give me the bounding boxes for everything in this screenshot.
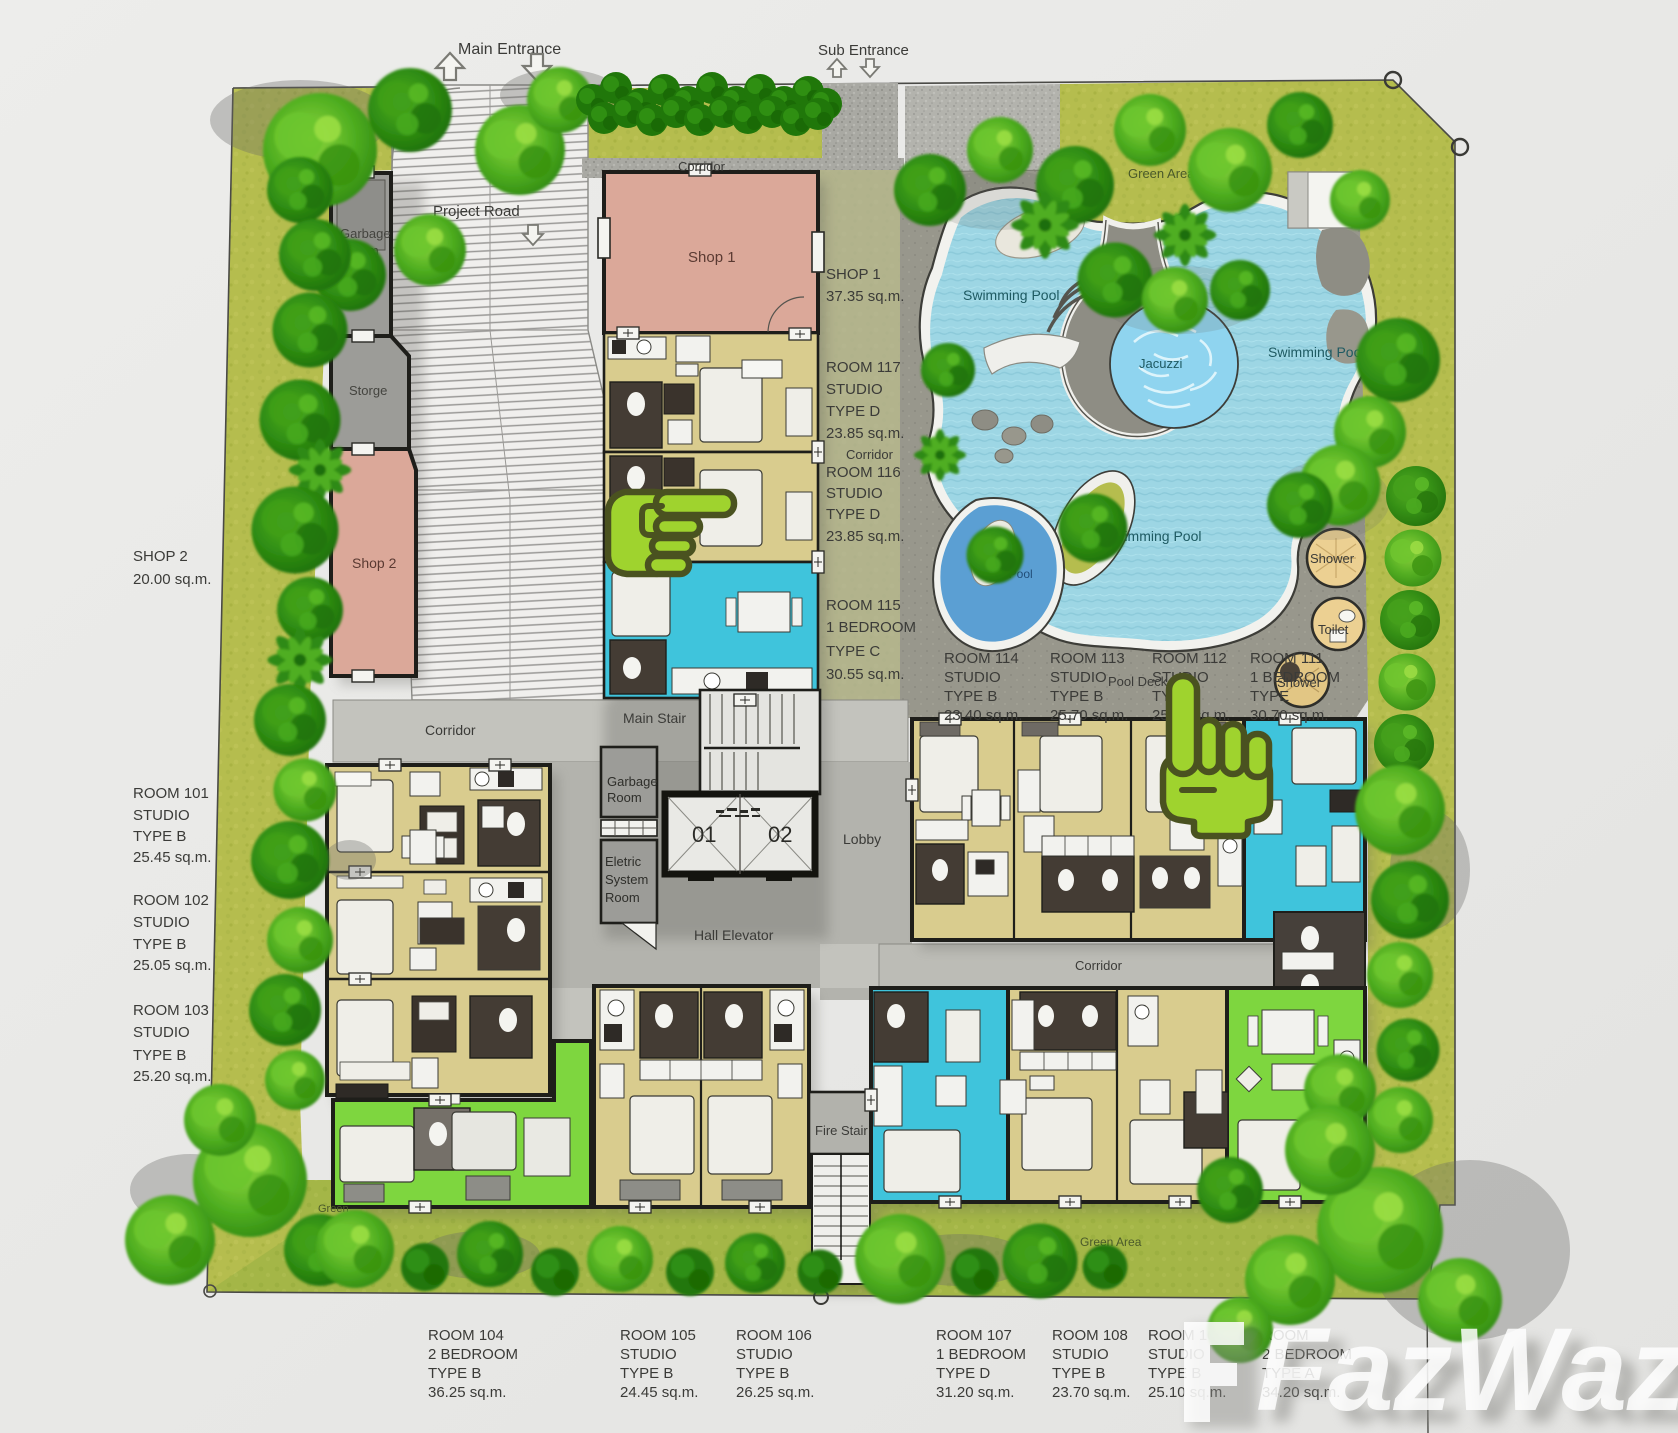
svg-text:Main Entrance: Main Entrance bbox=[458, 41, 561, 58]
svg-text:24.45 sq.m.: 24.45 sq.m. bbox=[620, 1384, 698, 1401]
svg-text:STUDIO: STUDIO bbox=[736, 1346, 793, 1363]
svg-text:Swimming Pool: Swimming Pool bbox=[1268, 344, 1364, 360]
svg-text:Eletric: Eletric bbox=[605, 854, 642, 869]
svg-text:TYPE B: TYPE B bbox=[428, 1365, 481, 1382]
svg-text:ROOM 102: ROOM 102 bbox=[133, 892, 209, 909]
svg-text:ROOM 107: ROOM 107 bbox=[936, 1327, 1012, 1344]
svg-text:ROOM 108: ROOM 108 bbox=[1052, 1327, 1128, 1344]
svg-text:23.40 sq.m.: 23.40 sq.m. bbox=[944, 707, 1022, 724]
svg-text:Sub Entrance: Sub Entrance bbox=[818, 42, 909, 59]
svg-text:25.70 sq.m.: 25.70 sq.m. bbox=[1050, 707, 1128, 724]
svg-text:Garbage: Garbage bbox=[340, 226, 391, 241]
svg-text:ROOM 113: ROOM 113 bbox=[1050, 650, 1125, 667]
svg-text:Corridor: Corridor bbox=[678, 159, 726, 174]
svg-text:Project Road: Project Road bbox=[433, 203, 520, 220]
svg-text:STUDIO: STUDIO bbox=[826, 485, 883, 502]
svg-text:Green Area: Green Area bbox=[1128, 166, 1195, 181]
svg-text:02: 02 bbox=[768, 822, 792, 847]
svg-text:TYPE B: TYPE B bbox=[1050, 688, 1103, 705]
svg-text:TYPE D: TYPE D bbox=[936, 1365, 990, 1382]
svg-text:ROOM 115: ROOM 115 bbox=[826, 597, 901, 614]
svg-text:2 BEDROOM: 2 BEDROOM bbox=[428, 1346, 518, 1363]
svg-text:25.20 sq.m.: 25.20 sq.m. bbox=[133, 1068, 211, 1085]
svg-text:TYPE B: TYPE B bbox=[133, 1047, 186, 1064]
svg-text:ROOM 117: ROOM 117 bbox=[826, 359, 901, 376]
svg-text:25.45 sq.m.: 25.45 sq.m. bbox=[133, 849, 211, 866]
svg-text:Shop 1: Shop 1 bbox=[688, 249, 736, 266]
svg-text:TYPE B: TYPE B bbox=[620, 1365, 673, 1382]
svg-text:37.35 sq.m.: 37.35 sq.m. bbox=[826, 288, 904, 305]
svg-text:FazWaz: FazWaz bbox=[1256, 1304, 1678, 1433]
svg-text:ROOM 104: ROOM 104 bbox=[428, 1327, 504, 1344]
svg-text:TYPE B: TYPE B bbox=[133, 828, 186, 845]
svg-text:01: 01 bbox=[692, 822, 716, 847]
svg-text:Garbage: Garbage bbox=[607, 774, 658, 789]
svg-text:TYPE: TYPE bbox=[1250, 688, 1289, 705]
svg-text:Storge: Storge bbox=[349, 383, 387, 398]
svg-text:TYPE D: TYPE D bbox=[826, 506, 880, 523]
svg-text:1 BEDROOM: 1 BEDROOM bbox=[936, 1346, 1026, 1363]
svg-text:TYPE B: TYPE B bbox=[736, 1365, 789, 1382]
svg-text:Lobby: Lobby bbox=[843, 831, 881, 847]
svg-text:STUDIO: STUDIO bbox=[944, 669, 1001, 686]
svg-text:TYPE D: TYPE D bbox=[826, 403, 880, 420]
svg-text:ROOM 103: ROOM 103 bbox=[133, 1002, 209, 1019]
svg-text:30.70 sq.m.: 30.70 sq.m. bbox=[1250, 707, 1328, 724]
svg-text:23.85 sq.m.: 23.85 sq.m. bbox=[826, 528, 904, 545]
svg-text:STUDIO: STUDIO bbox=[620, 1346, 677, 1363]
svg-text:Hall Elevator: Hall Elevator bbox=[694, 927, 774, 943]
svg-text:Corridor: Corridor bbox=[425, 722, 476, 738]
svg-text:30.55 sq.m.: 30.55 sq.m. bbox=[826, 666, 904, 683]
svg-text:Fire Stair: Fire Stair bbox=[815, 1123, 868, 1138]
svg-text:ROOM 111: ROOM 111 bbox=[1250, 650, 1324, 667]
svg-text:1 BEDROOM: 1 BEDROOM bbox=[1250, 669, 1340, 686]
svg-text:Room: Room bbox=[607, 790, 642, 805]
svg-text:Shower: Shower bbox=[1310, 551, 1355, 566]
svg-text:TYPE B: TYPE B bbox=[944, 688, 997, 705]
svg-text:TYPE B: TYPE B bbox=[1052, 1365, 1105, 1382]
svg-text:1 BEDROOM: 1 BEDROOM bbox=[826, 619, 916, 636]
svg-text:ROOM 105: ROOM 105 bbox=[620, 1327, 696, 1344]
svg-text:STUDIO: STUDIO bbox=[133, 807, 190, 824]
svg-text:Main Stair: Main Stair bbox=[623, 710, 686, 726]
svg-text:Corridor: Corridor bbox=[846, 447, 894, 462]
svg-text:STUDIO: STUDIO bbox=[1052, 1346, 1109, 1363]
svg-text:TYPE C: TYPE C bbox=[826, 643, 880, 660]
svg-text:25.05 sq.m.: 25.05 sq.m. bbox=[133, 957, 211, 974]
svg-text:Shop 2: Shop 2 bbox=[352, 555, 397, 571]
svg-text:STUDIO: STUDIO bbox=[133, 914, 190, 931]
svg-text:Corridor: Corridor bbox=[1075, 958, 1123, 973]
svg-text:ROOM 101: ROOM 101 bbox=[133, 785, 209, 802]
svg-text:STUDIO: STUDIO bbox=[133, 1024, 190, 1041]
svg-text:Jacuzzi: Jacuzzi bbox=[1139, 356, 1182, 371]
svg-text:ROOM 116: ROOM 116 bbox=[826, 464, 901, 481]
svg-text:ROOM 114: ROOM 114 bbox=[944, 650, 1019, 667]
svg-text:20.00 sq.m.: 20.00 sq.m. bbox=[133, 571, 211, 588]
svg-text:ROOM 106: ROOM 106 bbox=[736, 1327, 812, 1344]
svg-text:SHOP 2: SHOP 2 bbox=[133, 548, 188, 565]
svg-text:TYPE B: TYPE B bbox=[133, 936, 186, 953]
svg-text:36.25 sq.m.: 36.25 sq.m. bbox=[428, 1384, 506, 1401]
svg-text:System: System bbox=[605, 872, 648, 887]
svg-text:STUDIO: STUDIO bbox=[826, 381, 883, 398]
svg-text:Toilet: Toilet bbox=[1318, 622, 1349, 637]
svg-text:26.25 sq.m.: 26.25 sq.m. bbox=[736, 1384, 814, 1401]
svg-text:Room: Room bbox=[605, 890, 640, 905]
svg-text:Swimming Pool: Swimming Pool bbox=[963, 287, 1059, 303]
svg-text:31.20 sq.m.: 31.20 sq.m. bbox=[936, 1384, 1014, 1401]
svg-text:23.85 sq.m.: 23.85 sq.m. bbox=[826, 425, 904, 442]
svg-text:ROOM 112: ROOM 112 bbox=[1152, 650, 1227, 667]
svg-text:STUDIO: STUDIO bbox=[1050, 669, 1107, 686]
svg-text:SHOP 1: SHOP 1 bbox=[826, 266, 881, 283]
svg-text:23.70 sq.m.: 23.70 sq.m. bbox=[1052, 1384, 1130, 1401]
